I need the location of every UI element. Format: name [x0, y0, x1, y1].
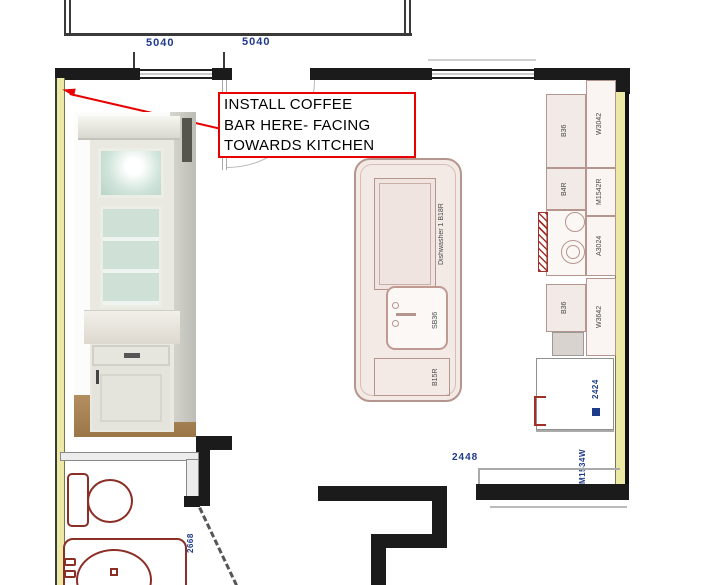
- dimension-label: 5040: [242, 36, 270, 48]
- annotation-box[interactable]: INSTALL COFFEE BAR HERE- FACING TOWARDS …: [218, 92, 416, 158]
- dimension-marker: [592, 408, 600, 416]
- bathroom-wall: [60, 452, 199, 461]
- bathroom-wall: [186, 459, 199, 498]
- wall-cabinet-label: W3642: [596, 280, 603, 354]
- door-jamb: [184, 496, 200, 507]
- bathroom-door-swing: [198, 507, 238, 585]
- crown-molding: [78, 116, 180, 140]
- dimension-label: 2448: [452, 452, 478, 463]
- wall-segment: [318, 486, 447, 501]
- drawer-pull: [124, 353, 140, 358]
- wall-segment: [476, 484, 629, 500]
- dimension-label: 5040: [146, 37, 174, 49]
- upper-wall-line: [404, 0, 411, 33]
- appliance-handle: [534, 396, 546, 426]
- countertop: [84, 310, 180, 344]
- annotation-line: INSTALL COFFEE: [224, 95, 414, 116]
- counter-line: [478, 468, 480, 484]
- dishwasher-inner: [379, 183, 431, 285]
- appliance-box: [552, 332, 584, 356]
- faucet-knob: [392, 320, 399, 327]
- upper-wall-line: [64, 33, 412, 36]
- dimension-label: 2668: [187, 524, 195, 562]
- door-panel-inset: [100, 374, 162, 422]
- window-jamb-tick: [223, 52, 225, 68]
- counter-line: [478, 468, 620, 470]
- sink: SB36: [386, 286, 448, 350]
- wall-segment: [371, 548, 386, 585]
- left-wall: [55, 78, 65, 585]
- floor-plan: 5040 5040 INSTALL COFFEE BAR HERE- FACIN…: [0, 0, 703, 585]
- right-wall: [615, 92, 629, 484]
- window: [432, 69, 534, 79]
- refrigerator: [536, 358, 614, 430]
- window-header-line: [428, 59, 536, 61]
- faucet-icon: [64, 570, 76, 578]
- wall-segment: [310, 68, 432, 80]
- coffee-bar-cabinet-render[interactable]: [74, 112, 196, 437]
- base-cabinet-label: B36: [561, 286, 568, 330]
- upper-wall-line: [64, 0, 71, 36]
- base-cabinet-label: B15R: [432, 359, 439, 395]
- window-jamb-tick: [133, 52, 135, 68]
- base-cabinet-label: B4R: [561, 169, 568, 209]
- toilet-bowl-icon: [87, 479, 133, 523]
- wall-cabinet-label: M1542R: [596, 169, 603, 215]
- porch-line: [490, 506, 627, 508]
- upper-glass-door: [98, 148, 164, 198]
- faucet-icon: [64, 558, 76, 566]
- wall-segment: [371, 534, 447, 548]
- dimension-label: 2424: [592, 368, 600, 410]
- door-handle: [96, 370, 99, 384]
- wall-return: [182, 118, 192, 162]
- sink-label: SB36: [432, 300, 439, 340]
- range-handle: [538, 212, 548, 272]
- annotation-line: BAR HERE- FACING: [224, 116, 414, 137]
- faucet-knob: [392, 302, 399, 309]
- kitchen-island: Dishwasher 1 B18R SB36 B15R: [354, 158, 462, 402]
- glass-display-shelves: [100, 206, 162, 308]
- toilet-tank-icon: [67, 473, 89, 527]
- window: [140, 69, 212, 79]
- drain-icon: [110, 568, 118, 576]
- wall-segment: [212, 68, 232, 80]
- range-burner-icon: [565, 212, 585, 232]
- range-burner-icon: [566, 245, 580, 259]
- wall-segment: [55, 68, 140, 80]
- counter-line: [536, 430, 614, 432]
- wall-cabinet-label: A3024: [596, 218, 603, 274]
- wall-cabinet-label: W3042: [596, 82, 603, 166]
- dishwasher: [374, 178, 436, 290]
- faucet-spout: [396, 313, 416, 316]
- dishwasher-label: Dishwasher 1 B18R: [438, 178, 445, 290]
- base-cabinet-label: B36: [561, 96, 568, 166]
- annotation-line: TOWARDS KITCHEN: [224, 136, 414, 157]
